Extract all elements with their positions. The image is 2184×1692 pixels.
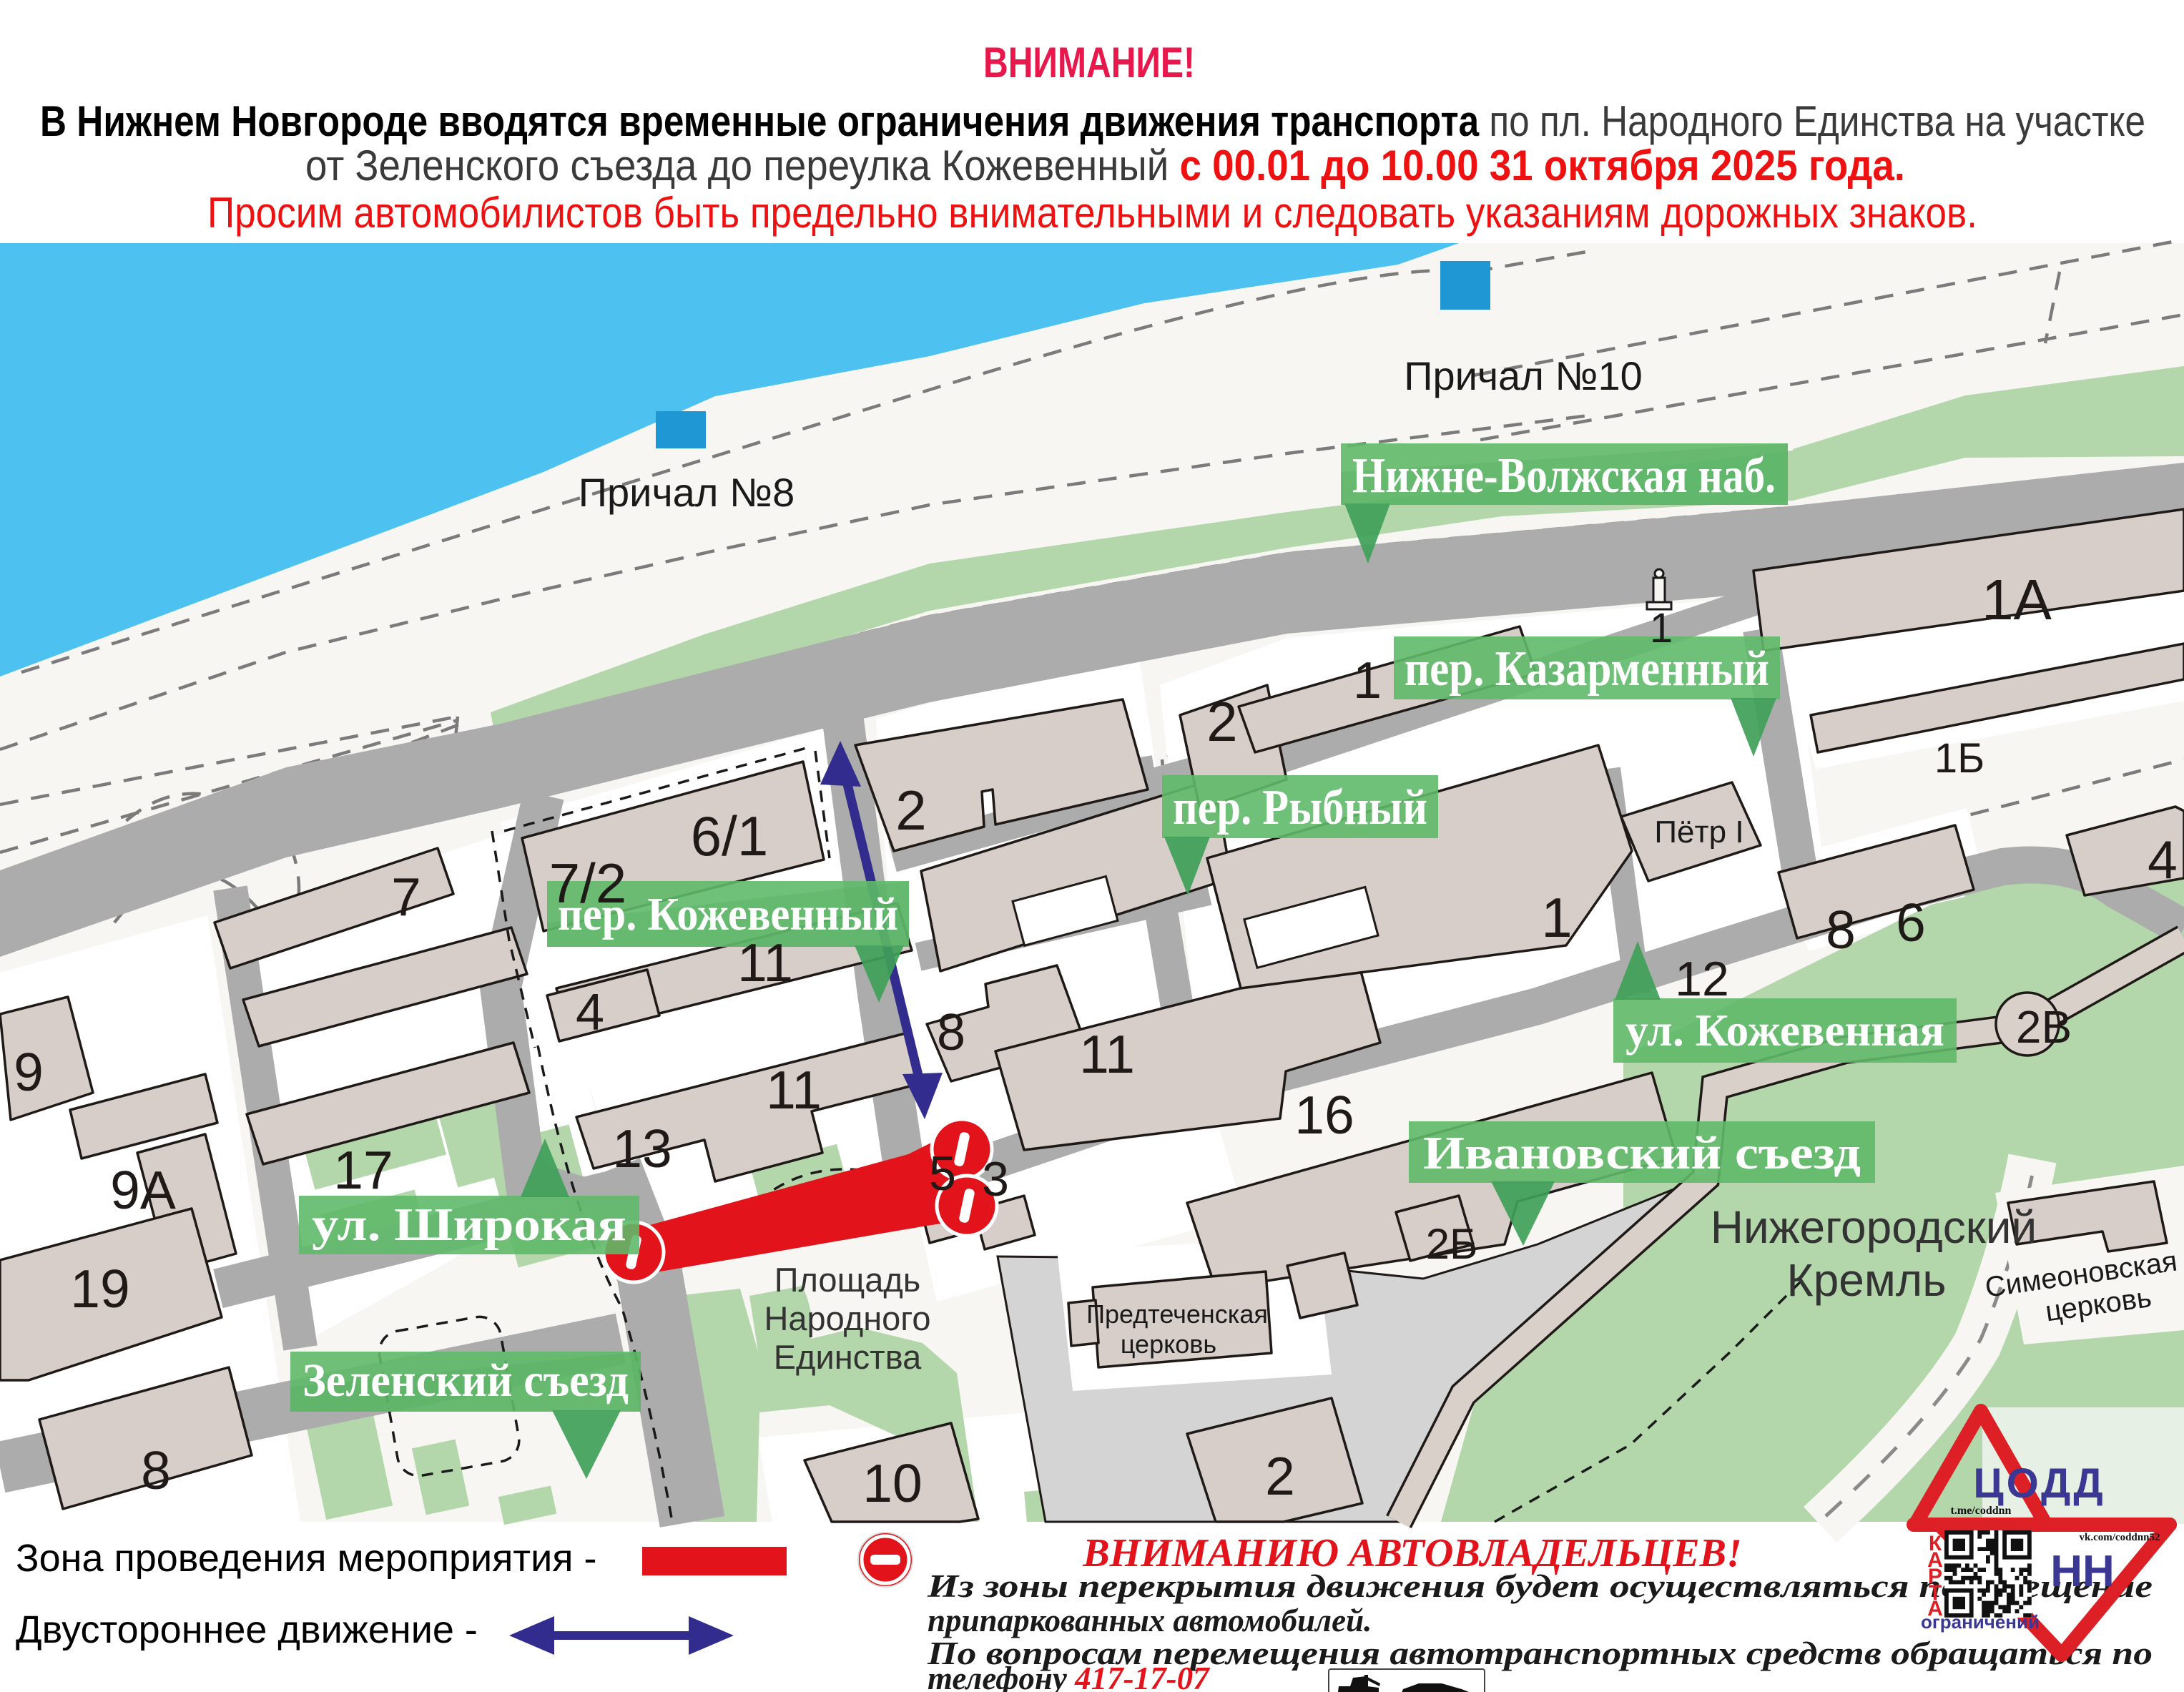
svg-text:церковь: церковь xyxy=(1121,1329,1216,1359)
svg-text:Единства: Единства xyxy=(774,1338,922,1376)
svg-text:Причал №8: Причал №8 xyxy=(579,470,795,515)
svg-text:Просим автомобилистов быть пре: Просим автомобилистов быть предельно вни… xyxy=(207,189,1977,237)
svg-text:2Б: 2Б xyxy=(1426,1220,1478,1268)
svg-text:Зона проведения мероприятия -: Зона проведения мероприятия - xyxy=(16,1537,597,1580)
svg-text:2В: 2В xyxy=(2016,1001,2072,1053)
svg-text:Кремль: Кремль xyxy=(1786,1254,1946,1306)
svg-text:3: 3 xyxy=(982,1152,1009,1206)
svg-text:пер. Рыбный: пер. Рыбный xyxy=(1173,780,1427,835)
svg-text:Народного: Народного xyxy=(764,1299,930,1337)
svg-text:Ивановский съезд: Ивановский съезд xyxy=(1423,1127,1861,1179)
svg-text:Нижне-Волжская наб.: Нижне-Волжская наб. xyxy=(1352,448,1776,503)
svg-text:8: 8 xyxy=(1826,900,1856,960)
svg-text:2: 2 xyxy=(1206,690,1237,753)
svg-text:t.me/coddnn: t.me/coddnn xyxy=(1951,1505,2012,1517)
svg-text:7: 7 xyxy=(391,867,421,927)
svg-text:7/2: 7/2 xyxy=(549,852,626,915)
svg-text:2: 2 xyxy=(895,779,926,842)
svg-text:9А: 9А xyxy=(110,1160,176,1220)
svg-text:1: 1 xyxy=(1650,605,1673,651)
svg-text:vk.com/coddnn52: vk.com/coddnn52 xyxy=(2080,1532,2160,1543)
svg-text:6/1: 6/1 xyxy=(691,805,768,867)
svg-text:НН: НН xyxy=(2050,1547,2115,1596)
svg-text:4: 4 xyxy=(2148,830,2178,890)
svg-text:11: 11 xyxy=(766,1060,822,1120)
svg-text:Нижегородский: Нижегородский xyxy=(1711,1201,2037,1253)
svg-text:от Зеленского съезда до переул: от Зеленского съезда до переулка Кожевен… xyxy=(305,142,1905,190)
svg-text:1: 1 xyxy=(1541,886,1572,949)
svg-text:Зеленский съезд: Зеленский съезд xyxy=(302,1354,629,1407)
svg-text:19: 19 xyxy=(70,1259,129,1319)
svg-text:Пётр I: Пётр I xyxy=(1654,815,1743,850)
svg-text:11: 11 xyxy=(1079,1024,1135,1084)
svg-text:Предтеченская: Предтеченская xyxy=(1086,1299,1268,1329)
svg-text:1Б: 1Б xyxy=(1934,735,1984,782)
svg-text:В Нижнем Новгороде вводятся вр: В Нижнем Новгороде вводятся временные ог… xyxy=(40,97,2145,145)
svg-text:припаркованных автомобилей.: припаркованных автомобилей. xyxy=(928,1603,1372,1638)
svg-text:Площадь: Площадь xyxy=(774,1261,921,1299)
svg-text:пер. Казарменный: пер. Казарменный xyxy=(1405,641,1769,697)
svg-text:ВНИМАНИЕ!: ВНИМАНИЕ! xyxy=(983,39,1195,87)
svg-text:ул. Широкая: ул. Широкая xyxy=(312,1199,626,1251)
svg-text:11: 11 xyxy=(737,933,793,993)
svg-text:8: 8 xyxy=(937,1004,965,1061)
svg-text:8: 8 xyxy=(141,1440,171,1500)
svg-text:5: 5 xyxy=(929,1146,956,1201)
svg-text:10: 10 xyxy=(862,1453,922,1513)
svg-text:1: 1 xyxy=(1353,652,1382,709)
svg-text:Причал №10: Причал №10 xyxy=(1404,353,1643,398)
svg-text:13: 13 xyxy=(612,1118,672,1179)
svg-text:1А: 1А xyxy=(1982,568,2052,631)
svg-text:ул. Кожевенная: ул. Кожевенная xyxy=(1625,1005,1944,1056)
svg-text:16: 16 xyxy=(1294,1085,1354,1145)
svg-text:ЦОДД: ЦОДД xyxy=(1973,1460,2105,1507)
svg-text:2: 2 xyxy=(1265,1446,1295,1506)
svg-text:17: 17 xyxy=(333,1140,393,1200)
svg-text:6: 6 xyxy=(1896,892,1926,953)
svg-text:Двустороннее движение -: Двустороннее движение - xyxy=(16,1608,478,1651)
svg-text:телефону 417-17-07: телефону 417-17-07 xyxy=(928,1661,1210,1692)
svg-text:9: 9 xyxy=(14,1042,44,1102)
svg-text:12: 12 xyxy=(1675,952,1729,1006)
svg-text:4: 4 xyxy=(576,984,604,1041)
